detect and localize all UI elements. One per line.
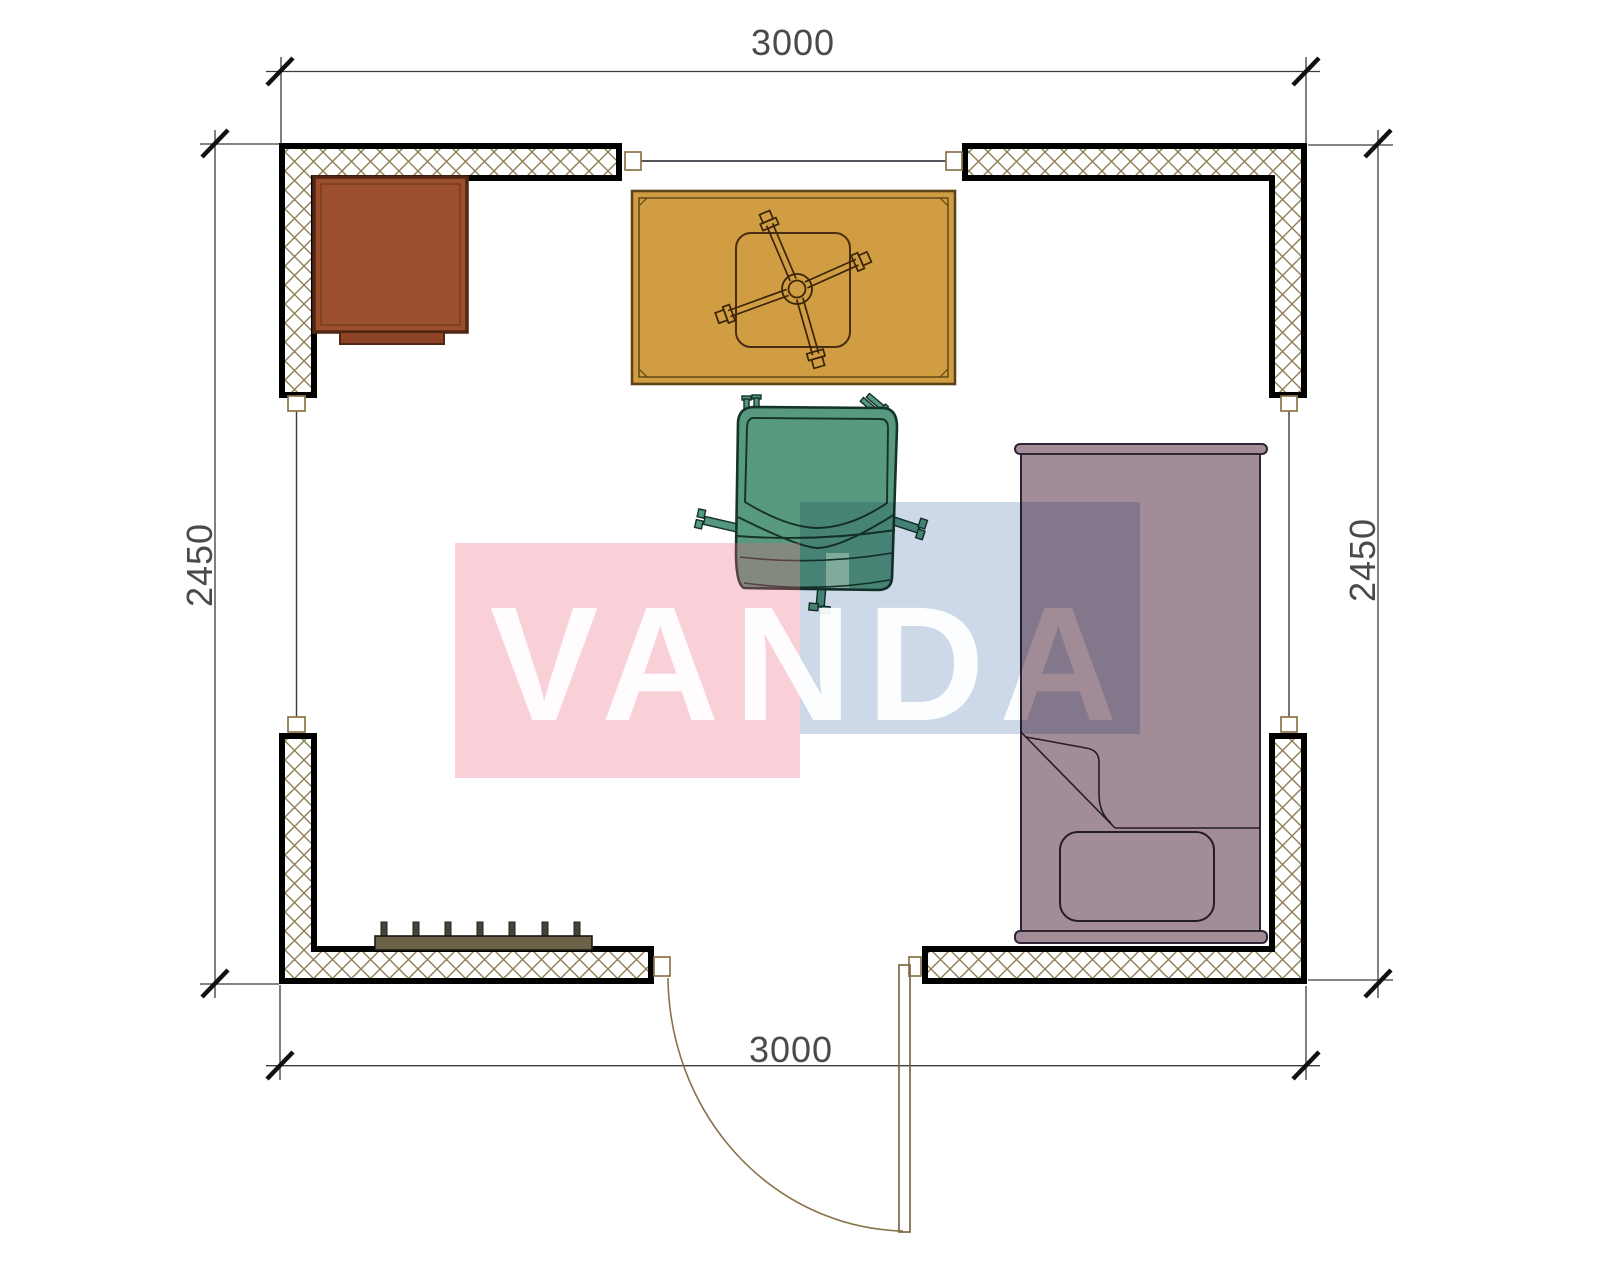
svg-text:3000: 3000 [751,22,835,63]
svg-text:2450: 2450 [1342,518,1383,602]
svg-text:2450: 2450 [179,523,220,607]
svg-text:3000: 3000 [749,1029,833,1070]
